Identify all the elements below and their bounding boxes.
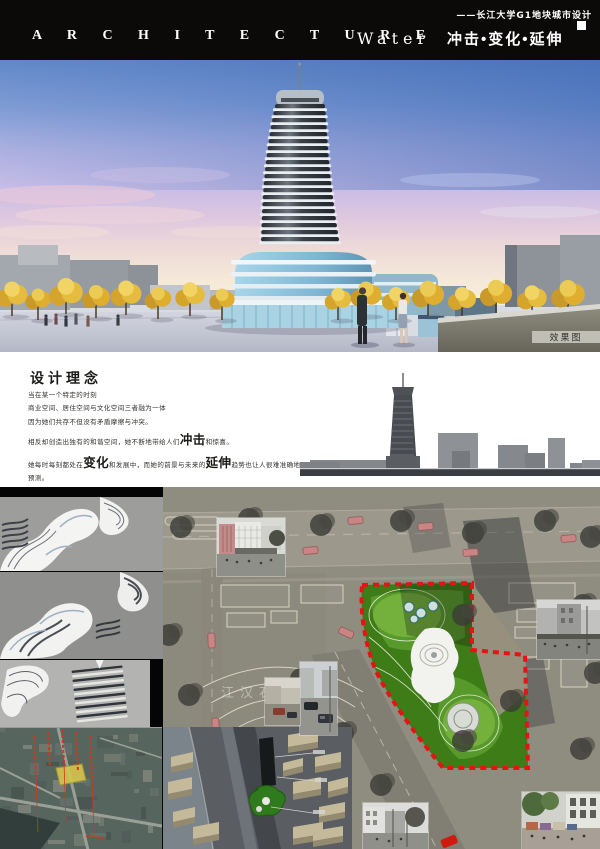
project-subtitle: ——长江大学G1地块城市设计 <box>456 8 592 21</box>
form-study-3 <box>0 660 150 727</box>
skyline-tower <box>386 373 420 469</box>
satellite-aerial <box>0 727 162 849</box>
render-caption: 效果图 <box>549 332 582 343</box>
rendering-scene: 效果图 <box>0 60 600 352</box>
slogan-text: 冲击•变化•延伸 <box>447 28 564 49</box>
skyline-ground <box>300 469 600 476</box>
form-study-1 <box>0 497 163 571</box>
massing-aerial <box>163 727 352 849</box>
concept-line: 当在某一个特定的时刻 <box>28 390 303 400</box>
concept-line: 相反却创造出独有的和谐空间，她不断地带给人们冲击和惊喜。 <box>28 430 303 450</box>
photo-street-small <box>265 678 300 725</box>
photo-street-cars <box>300 662 337 735</box>
concept-line: 她每时每刻都处在变化和发展中，而她的前景与未来的延伸趋势也让人很难准确地预测。 <box>28 453 303 483</box>
analysis-collage: 江汉石 <box>0 487 600 849</box>
photo-street-bw-2 <box>363 803 428 849</box>
form-study-2 <box>0 572 163 659</box>
white-square-mark <box>577 21 586 30</box>
concept-title: 设计理念 <box>30 368 102 388</box>
skyline-ground-edge <box>300 468 600 469</box>
skyline-elevation <box>300 373 600 480</box>
water-title: Water <box>357 29 430 48</box>
photo-street-corner <box>217 518 285 576</box>
concept-line: 商业空间、居住空间与文化空间三者融为一体 <box>28 403 303 413</box>
photo-street-bw <box>537 600 600 659</box>
concept-section: 设计理念 当在某一个特定的时刻商业空间、居住空间与文化空间三者融为一体因为她们共… <box>0 352 600 487</box>
photo-market-street <box>522 792 600 849</box>
presentation-board: ——长江大学G1地块城市设计 A R C H I T E C T U R E W… <box>0 0 600 849</box>
skyline-buildings <box>300 433 600 469</box>
main-rendering: 效果图 <box>0 60 600 352</box>
header-bar: ——长江大学G1地块城市设计 A R C H I T E C T U R E W… <box>0 0 600 60</box>
concept-line: 因为她们共存不但没有矛盾摩擦与冲突。 <box>28 417 303 427</box>
